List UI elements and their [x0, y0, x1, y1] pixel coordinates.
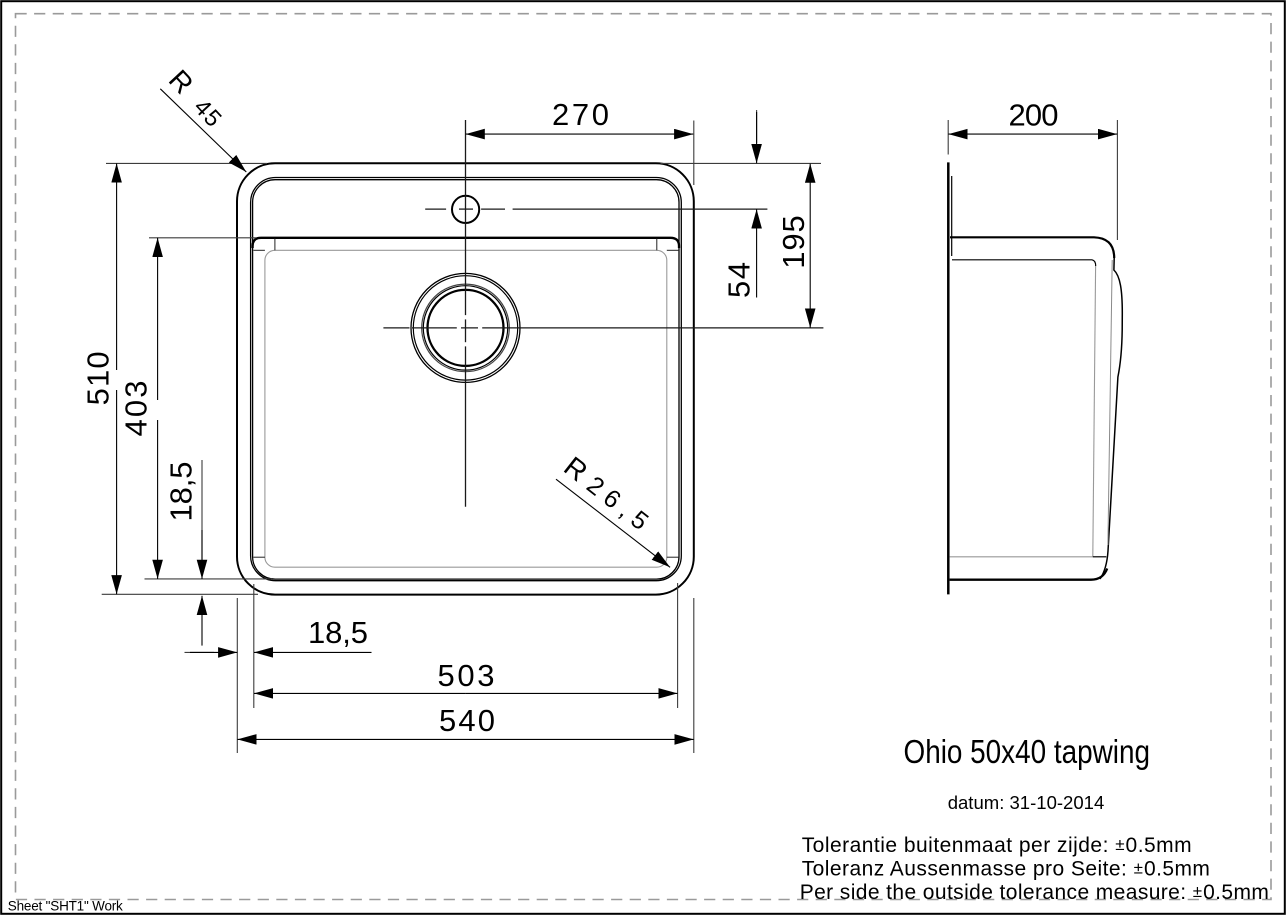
svg-text:510: 510	[81, 351, 116, 405]
svg-text:Ohio 50x40 tapwing: Ohio 50x40 tapwing	[904, 734, 1151, 771]
svg-text:18,5: 18,5	[164, 462, 199, 522]
svg-text:Tolerantie buitenmaat per zijd: Tolerantie buitenmaat per zijde: ±0.5mm	[802, 834, 1192, 857]
svg-text:Per side the outside tolerance: Per side the outside tolerance measure: …	[800, 881, 1270, 904]
svg-text:54: 54	[722, 262, 757, 298]
svg-text:503: 503	[438, 658, 495, 693]
svg-text:Toleranz Aussenmasse pro Seite: Toleranz Aussenmasse pro Seite: ±0.5mm	[802, 857, 1211, 880]
svg-text:270: 270	[552, 97, 609, 132]
svg-text:403: 403	[119, 381, 154, 437]
svg-text:Sheet "SHT1" Work: Sheet "SHT1" Work	[8, 899, 123, 914]
svg-text:200: 200	[1009, 98, 1059, 133]
svg-text:datum: 31-10-2014: datum: 31-10-2014	[948, 792, 1105, 813]
svg-text:540: 540	[439, 703, 495, 738]
svg-text:195: 195	[776, 215, 811, 269]
svg-text:18,5: 18,5	[308, 615, 368, 650]
